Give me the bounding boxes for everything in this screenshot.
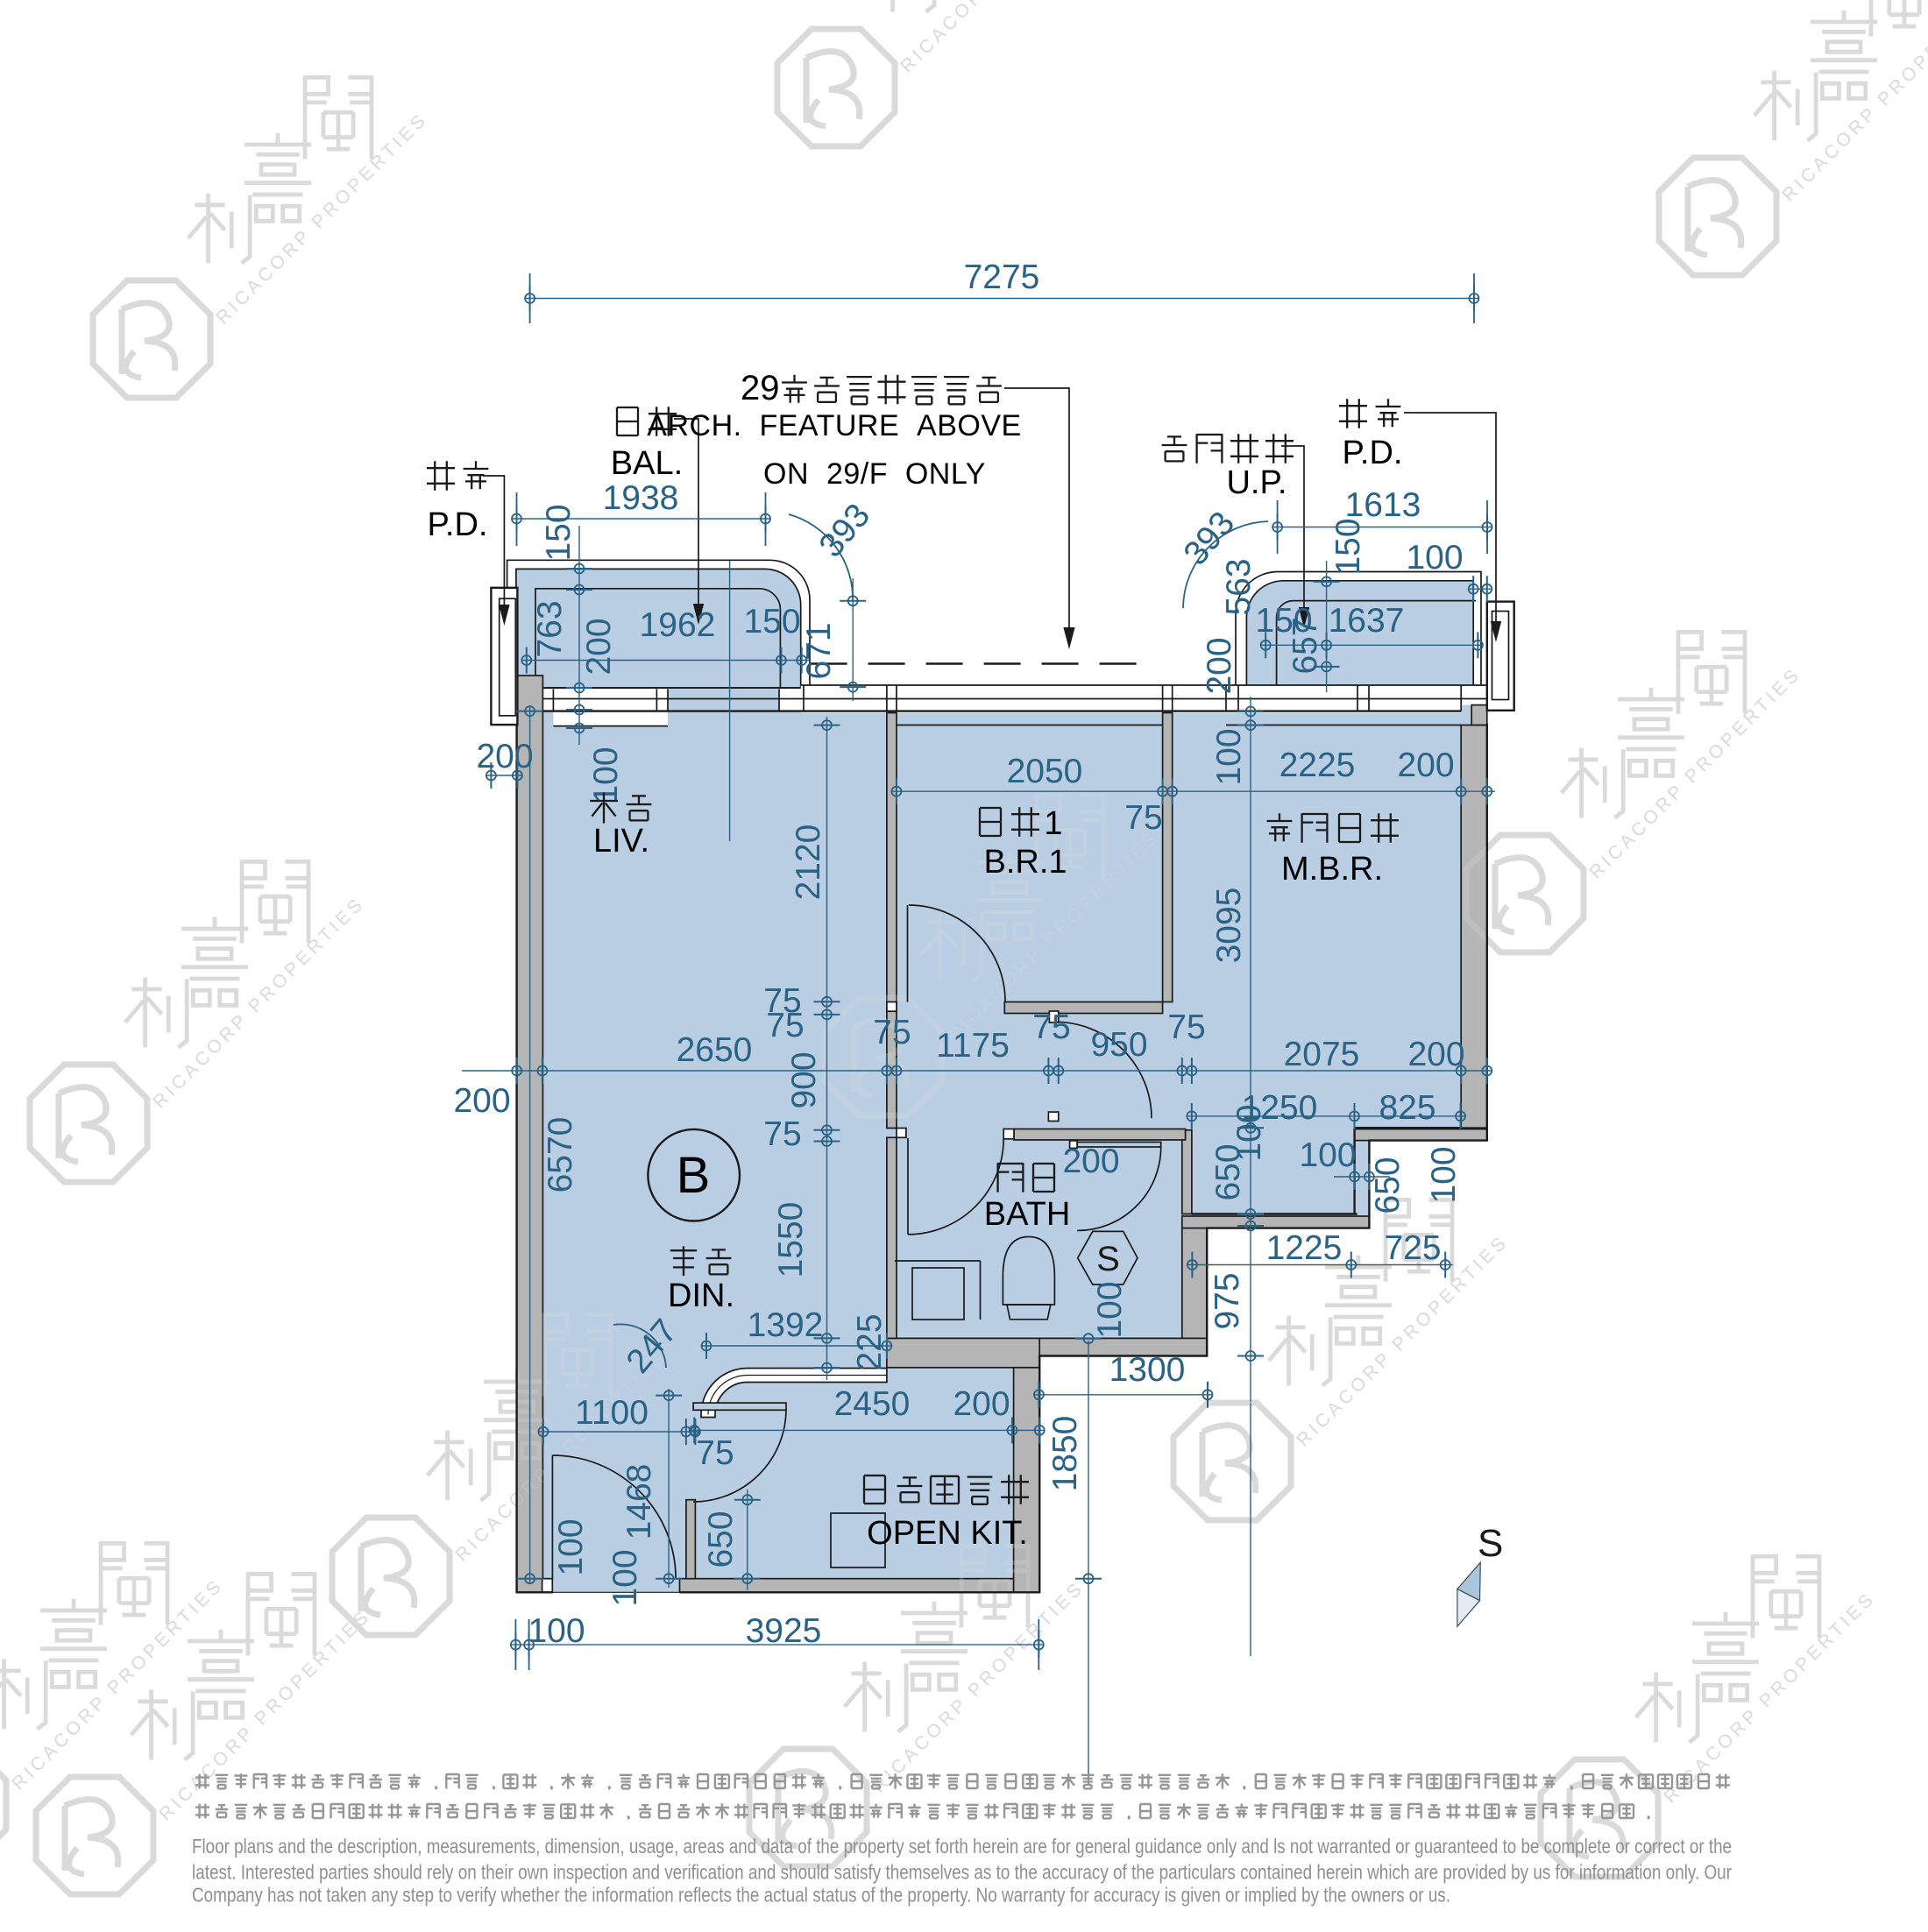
svg-text:7275: 7275 [964, 258, 1040, 296]
svg-text:150: 150 [743, 603, 800, 640]
svg-text:763: 763 [531, 600, 569, 657]
svg-text:2225: 2225 [1279, 747, 1356, 784]
svg-text:200: 200 [1407, 1036, 1464, 1073]
svg-text:OPEN KIT.: OPEN KIT. [867, 1515, 1028, 1552]
svg-text:U.P.: U.P. [1226, 464, 1287, 501]
svg-text:200: 200 [1201, 637, 1238, 694]
svg-text:1637: 1637 [1329, 602, 1405, 640]
svg-text:200: 200 [580, 618, 618, 675]
svg-text:1962: 1962 [640, 606, 716, 644]
svg-text:100: 100 [587, 747, 625, 803]
svg-text:S: S [1096, 1240, 1120, 1278]
svg-text:75: 75 [696, 1434, 734, 1472]
svg-text:DIN.: DIN. [668, 1277, 734, 1314]
svg-text:BAL.: BAL. [611, 445, 683, 482]
svg-text:1: 1 [1044, 805, 1062, 842]
svg-text:225: 225 [851, 1313, 889, 1370]
svg-text:100: 100 [528, 1612, 585, 1650]
svg-text:ON 29/F ONLY: ON 29/F ONLY [763, 457, 986, 491]
svg-text:1392: 1392 [748, 1306, 824, 1344]
svg-text:975: 975 [1209, 1272, 1246, 1329]
svg-text:3925: 3925 [746, 1612, 822, 1650]
svg-text:657: 657 [1287, 617, 1324, 674]
svg-text:Company has not taken any step: Company has not taken any step to verify… [192, 1884, 1450, 1907]
svg-text:100: 100 [1230, 1104, 1268, 1161]
svg-text:LIV.: LIV. [593, 823, 649, 860]
svg-text:1100: 1100 [575, 1394, 649, 1432]
svg-text:1938: 1938 [603, 479, 679, 517]
svg-text:100: 100 [1299, 1136, 1356, 1174]
svg-text:6570: 6570 [542, 1117, 579, 1193]
svg-text:29: 29 [741, 369, 780, 407]
svg-text:BATH: BATH [984, 1196, 1071, 1233]
svg-text:671: 671 [800, 622, 838, 679]
svg-text:2075: 2075 [1284, 1036, 1360, 1073]
svg-text:1300: 1300 [1109, 1351, 1186, 1389]
svg-text:2050: 2050 [1007, 753, 1083, 790]
svg-text:150: 150 [540, 504, 578, 561]
svg-text:100: 100 [552, 1518, 590, 1575]
svg-text:B.R.1: B.R.1 [983, 844, 1067, 881]
svg-text:75: 75 [873, 1014, 911, 1051]
svg-text:B: B [677, 1147, 711, 1204]
svg-text:75: 75 [1032, 1008, 1070, 1046]
svg-text:1850: 1850 [1046, 1416, 1084, 1492]
svg-text:200: 200 [953, 1385, 1010, 1423]
svg-text:100: 100 [1406, 539, 1463, 577]
svg-text:P.D.: P.D. [1342, 435, 1402, 471]
svg-text:100: 100 [1210, 728, 1248, 785]
svg-text:1468: 1468 [620, 1464, 658, 1540]
svg-text:900: 900 [785, 1051, 823, 1108]
svg-text:200: 200 [1062, 1143, 1119, 1180]
svg-text:3095: 3095 [1210, 888, 1248, 964]
svg-text:2650: 2650 [677, 1031, 753, 1069]
svg-text:200: 200 [476, 738, 533, 775]
svg-text:100: 100 [606, 1549, 644, 1606]
svg-text:75: 75 [1124, 799, 1162, 837]
svg-text:latest. Interested parties sho: latest. Interested parties should rely o… [192, 1861, 1732, 1884]
svg-text:100: 100 [1425, 1146, 1463, 1203]
svg-text:P.D.: P.D. [427, 506, 487, 543]
svg-text:75: 75 [766, 1007, 804, 1044]
svg-text:75: 75 [1167, 1008, 1205, 1046]
svg-text:M.B.R.: M.B.R. [1281, 851, 1383, 888]
svg-text:1550: 1550 [772, 1202, 810, 1278]
svg-text:100: 100 [1091, 1281, 1129, 1338]
svg-text:Floor plans and the descriptio: Floor plans and the description, measure… [192, 1835, 1732, 1858]
svg-text:S: S [1478, 1522, 1503, 1565]
svg-text:2120: 2120 [790, 824, 827, 901]
svg-text:563: 563 [1220, 558, 1258, 615]
svg-text:2450: 2450 [834, 1385, 911, 1423]
svg-text:75: 75 [763, 1115, 801, 1153]
svg-text:200: 200 [1397, 747, 1454, 784]
svg-text:150: 150 [1329, 518, 1367, 575]
svg-text:825: 825 [1379, 1089, 1435, 1127]
svg-text:725: 725 [1384, 1229, 1441, 1267]
svg-text:650: 650 [1369, 1157, 1407, 1214]
svg-text:ARCH. FEATURE ABOVE: ARCH. FEATURE ABOVE [647, 409, 1021, 442]
svg-text:650: 650 [702, 1511, 740, 1568]
svg-text:1225: 1225 [1266, 1229, 1343, 1267]
svg-text:1175: 1175 [936, 1027, 1010, 1065]
svg-text:950: 950 [1090, 1026, 1147, 1064]
svg-text:200: 200 [453, 1082, 510, 1120]
